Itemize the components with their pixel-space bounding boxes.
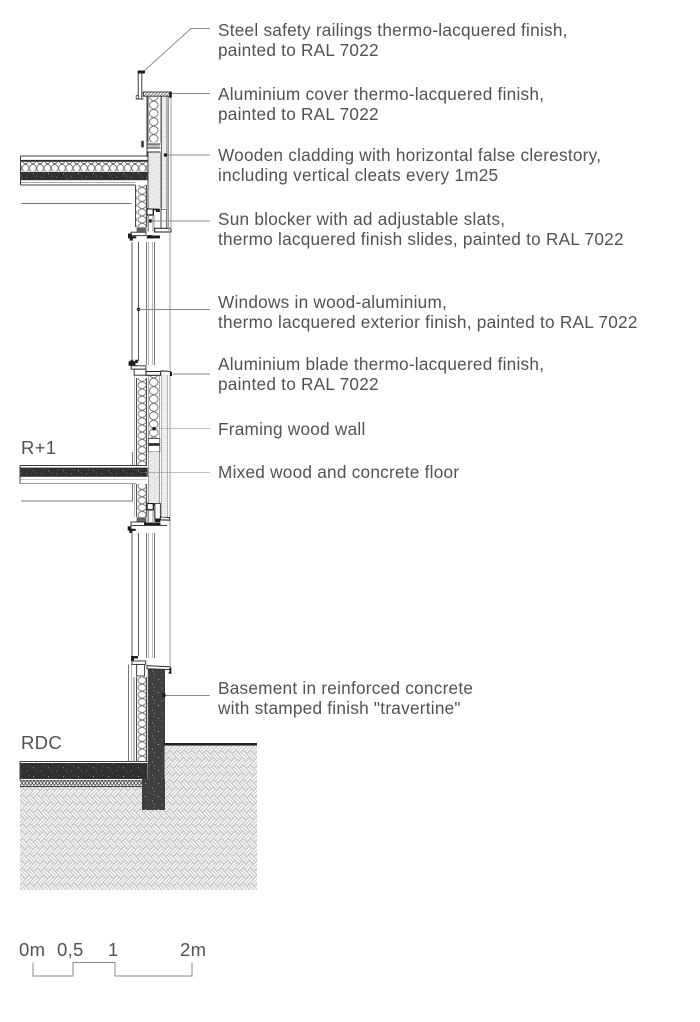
svg-text:Wooden cladding with horizonta: Wooden cladding with horizontal false cl… (218, 145, 601, 165)
svg-text:Aluminium cover thermo-lacquer: Aluminium cover thermo-lacquered finish, (218, 84, 544, 104)
svg-text:1: 1 (108, 939, 119, 960)
svg-text:Mixed wood and concrete floor: Mixed wood and concrete floor (218, 462, 459, 482)
svg-text:thermo lacquered finish slides: thermo lacquered finish slides, painted … (218, 229, 624, 249)
svg-text:Sun blocker with ad adjustable: Sun blocker with ad adjustable slats, (218, 209, 505, 229)
svg-text:0,5: 0,5 (57, 939, 84, 960)
svg-text:Framing wood wall: Framing wood wall (218, 419, 366, 439)
svg-text:RDC: RDC (21, 732, 62, 753)
svg-text:R+1: R+1 (21, 437, 56, 458)
svg-text:thermo lacquered exterior fini: thermo lacquered exterior finish, painte… (218, 312, 638, 332)
svg-text:0m: 0m (19, 939, 45, 960)
svg-text:Steel safety railings thermo-l: Steel safety railings thermo-lacquered f… (218, 20, 568, 40)
svg-text:Basement in reinforced concret: Basement in reinforced concrete (218, 678, 473, 698)
svg-text:painted to RAL 7022: painted to RAL 7022 (218, 40, 379, 60)
svg-text:Aluminium blade thermo-lacquer: Aluminium blade thermo-lacquered finish, (218, 354, 544, 374)
svg-text:painted to RAL 7022: painted to RAL 7022 (218, 104, 379, 124)
svg-text:painted to RAL 7022: painted to RAL 7022 (218, 374, 379, 394)
svg-text:with stamped finish "travertin: with stamped finish "travertine" (217, 698, 461, 718)
svg-text:including vertical cleats ever: including vertical cleats every 1m25 (218, 165, 498, 185)
svg-text:2m: 2m (180, 939, 206, 960)
svg-text:Windows in wood-aluminium,: Windows in wood-aluminium, (218, 292, 447, 312)
